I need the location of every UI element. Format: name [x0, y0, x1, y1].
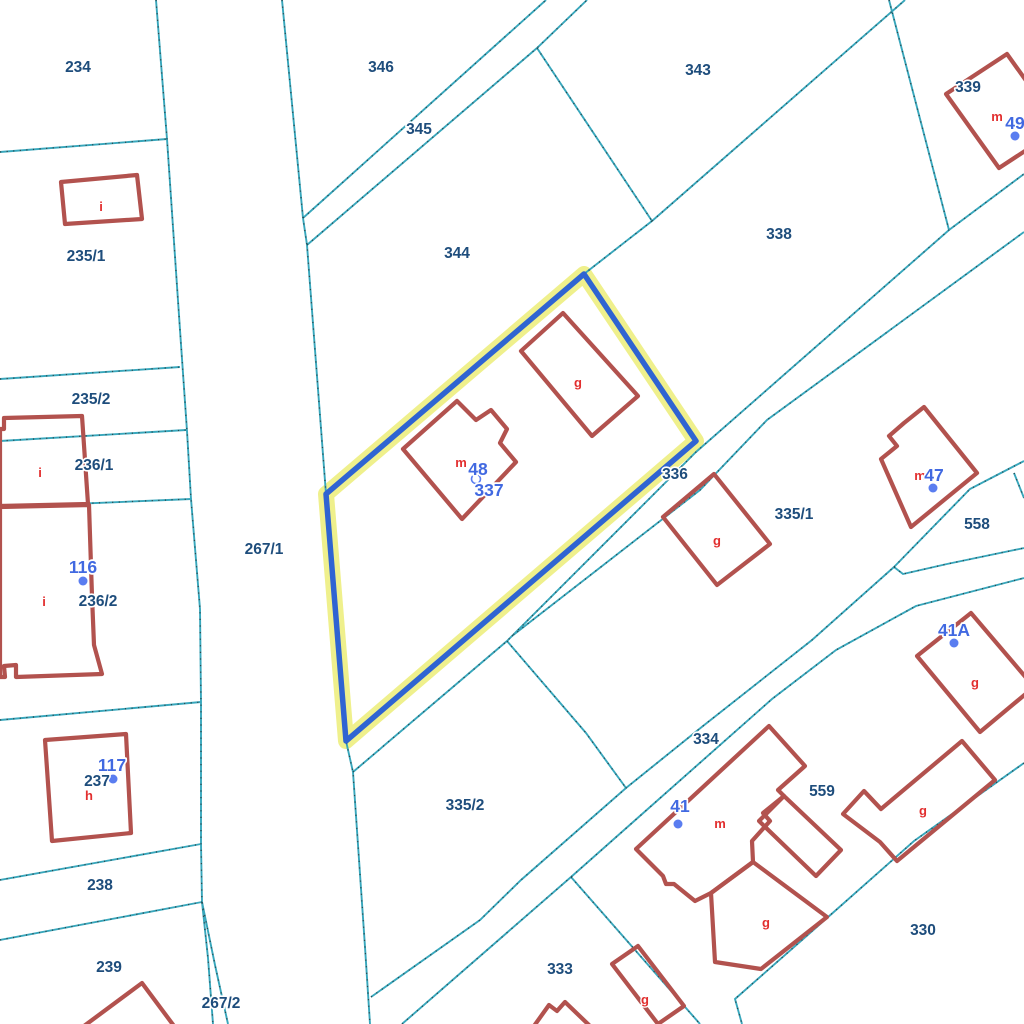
svg-text:47: 47 — [924, 465, 943, 485]
svg-text:g: g — [971, 675, 979, 690]
svg-text:235/1: 235/1 — [67, 248, 106, 265]
svg-text:345: 345 — [406, 121, 432, 138]
svg-text:117: 117 — [98, 755, 126, 775]
svg-text:330: 330 — [910, 922, 936, 939]
svg-text:334: 334 — [693, 731, 719, 748]
svg-text:267/2: 267/2 — [202, 995, 241, 1012]
svg-text:g: g — [574, 375, 582, 390]
svg-text:234: 234 — [65, 59, 91, 76]
svg-text:41: 41 — [670, 796, 690, 816]
svg-text:41A: 41A — [938, 620, 970, 640]
svg-text:i: i — [99, 199, 103, 214]
svg-text:337: 337 — [474, 480, 503, 500]
svg-text:333: 333 — [547, 961, 573, 978]
svg-text:335/2: 335/2 — [446, 797, 485, 814]
svg-text:48: 48 — [468, 459, 488, 479]
svg-text:235/2: 235/2 — [72, 391, 111, 408]
svg-text:343: 343 — [685, 62, 711, 79]
svg-text:g: g — [919, 803, 927, 818]
svg-text:g: g — [713, 533, 721, 548]
svg-text:236/2: 236/2 — [79, 593, 118, 610]
svg-text:344: 344 — [444, 245, 470, 262]
svg-text:335/1: 335/1 — [775, 506, 814, 523]
svg-text:558: 558 — [964, 516, 990, 533]
svg-text:g: g — [762, 915, 770, 930]
svg-text:m: m — [714, 816, 726, 831]
svg-text:346: 346 — [368, 59, 394, 76]
svg-text:338: 338 — [766, 226, 792, 243]
svg-text:116: 116 — [69, 557, 97, 577]
svg-text:238: 238 — [87, 877, 113, 894]
svg-text:49: 49 — [1005, 113, 1024, 133]
svg-text:i: i — [38, 465, 42, 480]
svg-text:m: m — [455, 455, 467, 470]
svg-text:h: h — [85, 788, 93, 803]
svg-text:i: i — [42, 594, 46, 609]
svg-text:336: 336 — [662, 466, 688, 483]
svg-text:267/1: 267/1 — [245, 541, 284, 558]
svg-text:236/1: 236/1 — [75, 457, 114, 474]
svg-text:559: 559 — [809, 783, 835, 800]
svg-text:g: g — [641, 992, 649, 1007]
svg-text:339: 339 — [955, 79, 981, 96]
svg-text:m: m — [991, 109, 1003, 124]
svg-text:239: 239 — [96, 959, 122, 976]
